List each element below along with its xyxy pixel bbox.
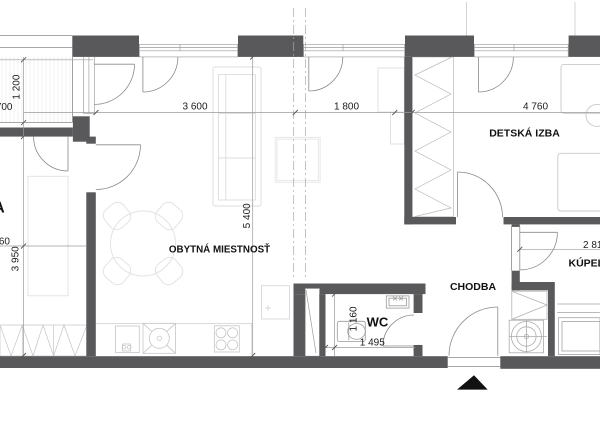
- svg-text:A: A: [0, 200, 5, 217]
- svg-text:700: 700: [0, 102, 13, 113]
- svg-text:1 495: 1 495: [360, 338, 385, 349]
- svg-text:1 160: 1 160: [348, 306, 359, 331]
- svg-text:WC: WC: [367, 315, 389, 330]
- svg-text:1 200: 1 200: [12, 74, 23, 99]
- svg-text:3 950: 3 950: [11, 246, 22, 271]
- svg-text:1 800: 1 800: [334, 101, 359, 112]
- svg-text:60: 60: [0, 236, 10, 247]
- svg-text:2 815: 2 815: [583, 240, 600, 251]
- svg-text:CHODBA: CHODBA: [450, 281, 496, 293]
- svg-text:KÚPEĽŇA: KÚPEĽŇA: [569, 257, 600, 270]
- svg-text:5 400: 5 400: [242, 203, 253, 228]
- svg-text:DETSKÁ IZBA: DETSKÁ IZBA: [489, 127, 560, 140]
- svg-text:3 600: 3 600: [182, 101, 207, 112]
- svg-text:OBYTNÁ MIESTNOSŤ: OBYTNÁ MIESTNOSŤ: [169, 244, 270, 256]
- svg-text:4 760: 4 760: [523, 101, 548, 112]
